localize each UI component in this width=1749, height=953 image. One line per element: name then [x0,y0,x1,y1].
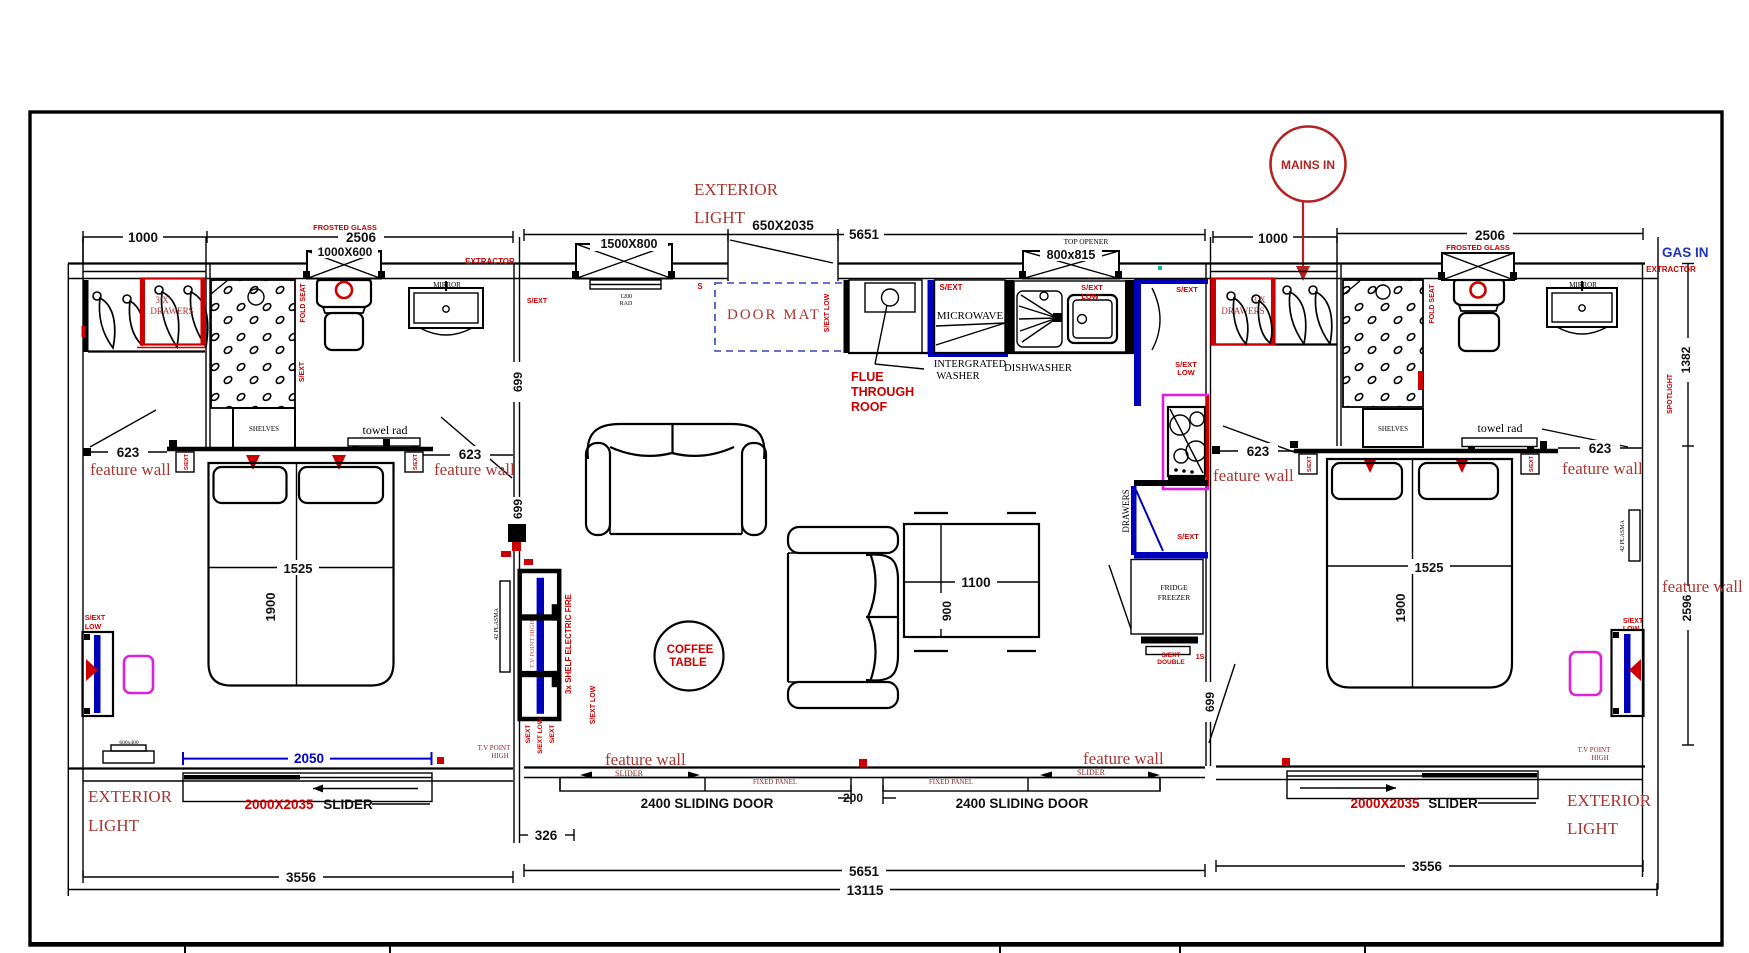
svg-text:EXTERIOR: EXTERIOR [88,787,173,806]
svg-text:1000X600: 1000X600 [318,245,373,259]
svg-text:1000: 1000 [1258,231,1288,246]
svg-text:WASHER: WASHER [936,371,979,382]
svg-text:FIXED PANEL: FIXED PANEL [929,778,973,786]
svg-text:LOW: LOW [1177,368,1195,377]
svg-text:800x815: 800x815 [1047,248,1096,262]
svg-text:EXTRACTOR: EXTRACTOR [465,257,515,266]
svg-text:S/EXT: S/EXT [939,283,962,292]
svg-text:2000X2035: 2000X2035 [1350,796,1420,811]
svg-text:FROSTED GLASS: FROSTED GLASS [1446,243,1510,252]
svg-text:1000: 1000 [128,230,158,245]
svg-text:S/EXT: S/EXT [1081,283,1103,292]
svg-text:42 PLASMA: 42 PLASMA [494,607,500,640]
svg-text:FLUE: FLUE [851,370,884,384]
svg-text:S/EXT: S/EXT [413,453,419,470]
svg-text:feature wall: feature wall [1083,749,1164,768]
svg-text:S: S [697,282,703,291]
svg-text:SLIDER: SLIDER [1077,768,1106,777]
svg-text:SHELVES: SHELVES [1378,425,1408,433]
svg-text:GAS IN: GAS IN [1662,245,1709,260]
svg-text:1S: 1S [1196,654,1205,661]
svg-text:feature wall: feature wall [90,460,171,479]
svg-text:FOLD SEAT: FOLD SEAT [300,283,307,323]
svg-text:S/EXT LOW: S/EXT LOW [824,293,831,332]
svg-text:RAD: RAD [620,301,633,307]
svg-text:MAINS IN: MAINS IN [1281,158,1335,172]
svg-text:TOP OPENER: TOP OPENER [1064,237,1109,246]
svg-text:S/EXT: S/EXT [1529,455,1535,472]
svg-text:900: 900 [940,601,954,621]
svg-text:650X2035: 650X2035 [752,218,814,233]
svg-text:2400 SLIDING DOOR: 2400 SLIDING DOOR [956,796,1089,811]
svg-text:EXTRACTOR: EXTRACTOR [1646,265,1696,274]
svg-text:S/EXT LOW: S/EXT LOW [537,717,544,754]
svg-text:SLIDER: SLIDER [323,797,373,812]
svg-text:S/EXT: S/EXT [299,361,306,382]
svg-text:S/EXT LOW: S/EXT LOW [590,685,597,724]
svg-text:623: 623 [117,445,140,460]
svg-text:200: 200 [843,791,863,805]
svg-text:THROUGH: THROUGH [851,385,914,399]
svg-text:1525: 1525 [1415,560,1444,575]
svg-text:feature wall: feature wall [1662,577,1743,596]
svg-text:FRIDGE: FRIDGE [1160,583,1188,592]
svg-text:S/EXT: S/EXT [1176,285,1198,294]
svg-text:S/EXT: S/EXT [549,725,556,744]
svg-text:1900: 1900 [263,593,278,622]
svg-text:2506: 2506 [1475,228,1506,243]
svg-text:SLIDER: SLIDER [615,769,644,778]
svg-text:DRAWERS: DRAWERS [1121,489,1131,532]
svg-text:DRAWERS: DRAWERS [150,306,193,316]
svg-text:S/EXT: S/EXT [1307,455,1313,472]
svg-text:1382: 1382 [1679,346,1693,373]
svg-text:feature wall: feature wall [434,460,515,479]
svg-text:MICROWAVE: MICROWAVE [937,310,1004,322]
svg-text:EXTERIOR: EXTERIOR [694,180,779,199]
svg-text:LOW: LOW [1081,292,1099,301]
svg-text:LIGHT: LIGHT [694,208,746,227]
svg-text:T.V POINT HIGH: T.V POINT HIGH [529,620,536,669]
svg-text:1900: 1900 [1393,594,1408,623]
svg-text:LIGHT: LIGHT [1567,819,1619,838]
svg-text:13115: 13115 [847,883,884,898]
svg-text:3556: 3556 [1412,859,1443,874]
svg-text:DOOR MAT: DOOR MAT [727,307,821,323]
svg-text:towel rad: towel rad [1478,421,1523,435]
svg-text:3556: 3556 [286,870,317,885]
svg-text:SPOTLIGHT: SPOTLIGHT [1667,373,1674,414]
svg-text:EXTERIOR: EXTERIOR [1567,791,1652,810]
svg-text:1200: 1200 [620,294,632,300]
svg-text:3x SHELF ELECTRIC FIRE: 3x SHELF ELECTRIC FIRE [564,593,573,694]
svg-text:SHELVES: SHELVES [249,425,279,433]
svg-text:DISHWASHER: DISHWASHER [1004,363,1072,374]
svg-text:1500X800: 1500X800 [600,237,657,251]
svg-text:FOLD SEAT: FOLD SEAT [1429,284,1436,324]
svg-text:S/EXT: S/EXT [85,615,106,622]
svg-text:1100: 1100 [961,575,990,590]
svg-text:HIGH: HIGH [1591,754,1609,762]
svg-text:5651: 5651 [849,227,880,242]
svg-text:S/EXT: S/EXT [1623,618,1644,625]
svg-text:326: 326 [535,828,558,843]
svg-text:2596: 2596 [1680,594,1694,621]
svg-text:3 X: 3 X [155,295,169,305]
svg-text:LIGHT: LIGHT [88,816,140,835]
svg-text:2506: 2506 [346,230,377,245]
svg-text:COFFEE: COFFEE [667,644,714,656]
svg-text:T.V POINT: T.V POINT [1578,746,1612,754]
svg-text:INTERGRATED: INTERGRATED [934,359,1007,370]
svg-text:S/EXT: S/EXT [525,725,532,744]
svg-text:FIXED PANEL: FIXED PANEL [753,778,797,786]
svg-text:TABLE: TABLE [669,657,707,669]
svg-text:S/EXT: S/EXT [1177,532,1199,541]
svg-text:towel rad: towel rad [363,423,408,437]
svg-text:S/EXT: S/EXT [1162,652,1181,659]
svg-text:FROSTED GLASS: FROSTED GLASS [313,223,377,232]
svg-text:S/EXT: S/EXT [184,453,190,470]
svg-text:feature wall: feature wall [605,750,686,769]
svg-text:DOUBLE: DOUBLE [1157,659,1185,666]
svg-text:699: 699 [511,499,525,519]
svg-text:2050: 2050 [294,751,324,766]
svg-text:699: 699 [511,372,525,392]
svg-text:699: 699 [1203,692,1217,712]
svg-text:1525: 1525 [284,561,313,576]
svg-text:S/EXT: S/EXT [527,298,548,305]
svg-text:42 PLASMA: 42 PLASMA [1620,519,1626,552]
svg-text:623: 623 [1247,444,1270,459]
svg-text:feature wall: feature wall [1213,466,1294,485]
svg-text:FREEZER: FREEZER [1158,593,1191,602]
svg-text:LOW: LOW [85,624,102,631]
svg-text:T.V POINT: T.V POINT [478,744,512,752]
svg-text:5651: 5651 [849,864,880,879]
svg-text:SLIDER: SLIDER [1428,796,1478,811]
svg-text:2000X2035: 2000X2035 [244,797,314,812]
svg-text:ROOF: ROOF [851,400,887,414]
svg-text:623: 623 [1589,441,1612,456]
svg-text:HIGH: HIGH [491,752,509,760]
svg-text:2400 SLIDING DOOR: 2400 SLIDING DOOR [641,796,774,811]
svg-text:feature wall: feature wall [1562,459,1643,478]
